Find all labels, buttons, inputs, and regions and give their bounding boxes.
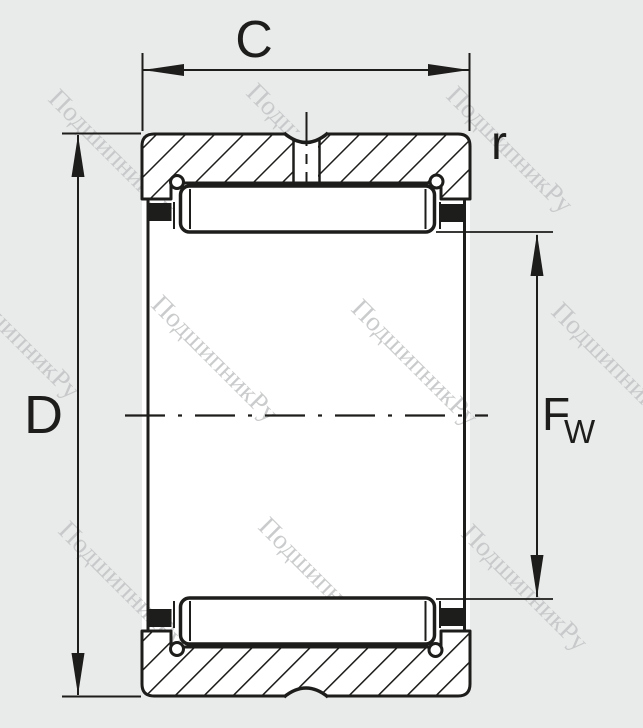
bearing-drawing: ПодшипникРу ПодшипникРу ПодшипникРу Подш… [0,0,643,728]
cage-lip-bottom-left [171,643,184,656]
label-r: r [491,117,507,170]
label-c: C [235,11,273,69]
cage-block-top-right [441,204,464,222]
cage-lip-top-right [430,175,443,188]
cage-lip-top-left [171,176,184,189]
needle-roller-bottom [181,598,435,644]
needle-roller-top [181,186,435,232]
cage-block-bottom-right [441,608,464,626]
technical-drawing-page: ПодшипникРу ПодшипникРу ПодшипникРу Подш… [0,0,643,728]
cage-block-bottom-left [149,609,172,627]
label-d: D [24,385,63,445]
cage-lip-bottom-right [429,644,442,657]
label-fw-w: W [564,413,596,450]
cage-block-top-left [149,203,172,221]
